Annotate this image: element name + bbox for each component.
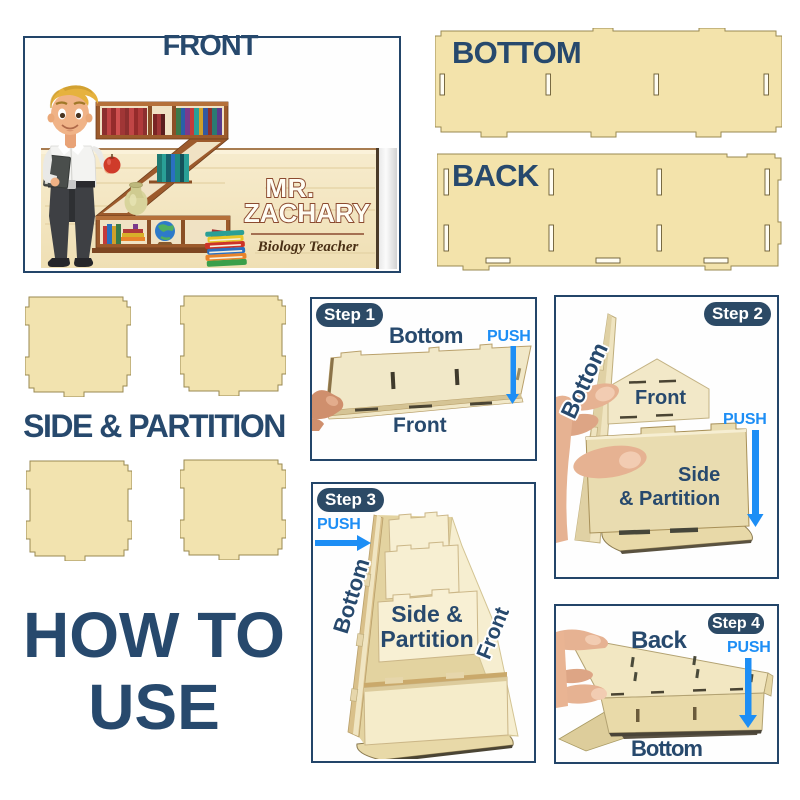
svg-text:ZACHARY: ZACHARY: [244, 198, 370, 228]
svg-text:Biology Teacher: Biology Teacher: [257, 239, 359, 255]
